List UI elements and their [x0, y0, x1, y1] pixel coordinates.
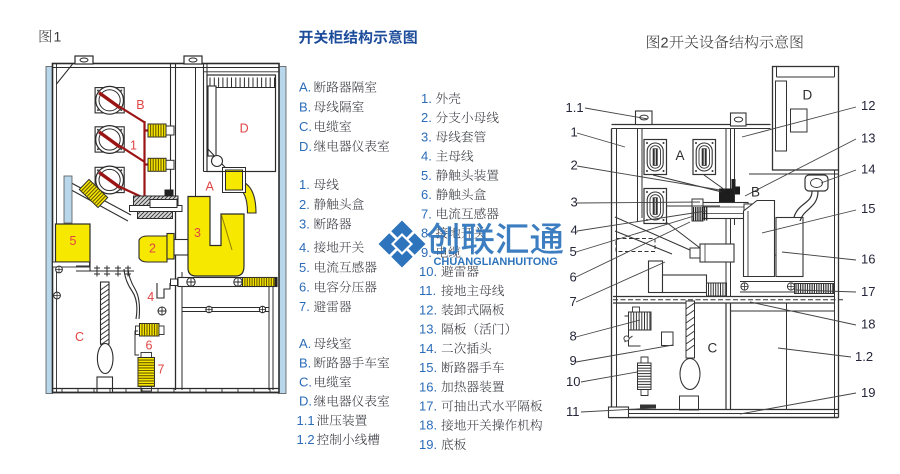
- svg-text:16.: 16.: [419, 379, 437, 394]
- svg-text:4.: 4.: [421, 149, 432, 164]
- svg-text:15.: 15.: [419, 360, 437, 375]
- svg-text:4: 4: [147, 290, 154, 304]
- svg-text:D: D: [240, 122, 249, 136]
- svg-text:A.: A.: [299, 336, 311, 351]
- svg-text:1: 1: [54, 29, 62, 45]
- svg-text:D.: D.: [299, 139, 312, 154]
- svg-text:11.: 11.: [419, 283, 436, 298]
- svg-text:2: 2: [661, 36, 669, 52]
- svg-text:1.1: 1.1: [566, 100, 584, 115]
- svg-text:17.: 17.: [419, 399, 437, 414]
- svg-text:C: C: [708, 341, 718, 356]
- svg-text:19.: 19.: [419, 437, 437, 452]
- svg-text:B: B: [751, 185, 760, 200]
- svg-text:6: 6: [146, 339, 153, 353]
- svg-text:6: 6: [570, 269, 577, 284]
- svg-text:18.: 18.: [419, 418, 437, 433]
- svg-text:6.: 6.: [299, 280, 310, 295]
- svg-text:9.: 9.: [421, 245, 432, 260]
- svg-text:CHUANGLIANHUITONG: CHUANGLIANHUITONG: [434, 256, 559, 268]
- svg-text:14.: 14.: [419, 341, 437, 356]
- svg-text:6.: 6.: [421, 187, 432, 202]
- svg-text:5.: 5.: [299, 260, 310, 275]
- svg-text:4: 4: [571, 223, 578, 238]
- svg-text:14: 14: [861, 162, 875, 177]
- svg-text:1.2: 1.2: [855, 349, 873, 364]
- svg-text:13: 13: [861, 131, 875, 146]
- svg-text:2: 2: [571, 158, 578, 173]
- svg-text:4.: 4.: [299, 240, 310, 255]
- svg-text:19: 19: [861, 385, 875, 400]
- svg-text:C.: C.: [299, 119, 312, 134]
- svg-text:2.: 2.: [299, 197, 310, 212]
- svg-text:11: 11: [566, 404, 580, 419]
- svg-text:17: 17: [861, 284, 875, 299]
- svg-text:1.2: 1.2: [297, 432, 315, 447]
- svg-text:A.: A.: [299, 80, 311, 95]
- svg-text:2: 2: [149, 242, 156, 256]
- svg-text:15: 15: [861, 201, 875, 216]
- svg-text:A: A: [206, 180, 215, 194]
- svg-text:C: C: [75, 330, 84, 344]
- svg-text:13.: 13.: [419, 322, 437, 337]
- svg-text:D: D: [803, 88, 813, 103]
- svg-text:9: 9: [570, 353, 577, 368]
- svg-text:7: 7: [158, 363, 165, 377]
- svg-text:3.: 3.: [299, 217, 310, 232]
- svg-text:16: 16: [861, 251, 875, 266]
- svg-text:18: 18: [861, 317, 875, 332]
- svg-text:10: 10: [566, 374, 580, 389]
- svg-text:7: 7: [570, 294, 577, 309]
- svg-text:2.: 2.: [421, 110, 432, 125]
- svg-text:12.: 12.: [419, 302, 437, 317]
- svg-text:D.: D.: [299, 394, 312, 409]
- svg-text:B.: B.: [299, 355, 311, 370]
- svg-text:5: 5: [570, 244, 577, 259]
- svg-text:7.: 7.: [299, 299, 310, 314]
- svg-text:3: 3: [571, 195, 578, 210]
- svg-text:1.1: 1.1: [297, 413, 315, 428]
- svg-text:5.: 5.: [421, 168, 432, 183]
- svg-text:3.: 3.: [421, 129, 432, 144]
- svg-text:12: 12: [861, 98, 875, 113]
- svg-text:5: 5: [70, 234, 77, 248]
- svg-text:3: 3: [194, 226, 201, 240]
- svg-text:B: B: [136, 98, 144, 112]
- svg-text:7.: 7.: [421, 206, 432, 221]
- svg-text:1.: 1.: [299, 177, 310, 192]
- svg-text:1: 1: [130, 139, 137, 153]
- svg-text:B.: B.: [299, 99, 311, 114]
- svg-text:1: 1: [571, 125, 578, 140]
- svg-text:1.: 1.: [421, 91, 432, 106]
- svg-text:C.: C.: [299, 375, 312, 390]
- svg-text:8: 8: [570, 329, 577, 344]
- svg-text:A: A: [676, 148, 685, 163]
